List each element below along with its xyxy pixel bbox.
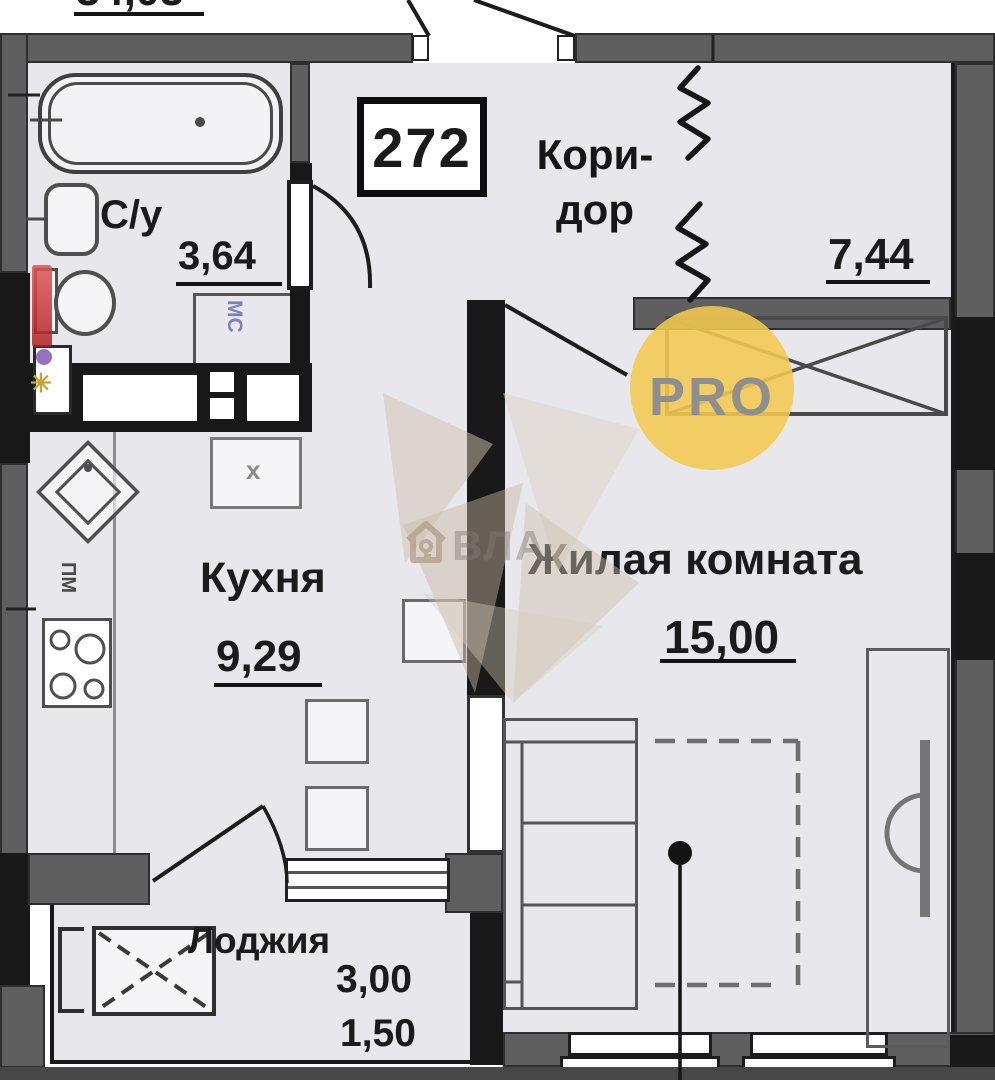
- room-corridor-name: Кори- дор: [510, 128, 680, 237]
- washing-machine-label: МС: [222, 300, 246, 333]
- floor-plan: ✳ х: [0, 0, 995, 1080]
- room-loggia-area-full: 3,00: [336, 958, 412, 1002]
- unit-number: 272: [372, 115, 471, 180]
- room-living-area: 15,00: [664, 610, 779, 664]
- unit-number-box: 272: [357, 97, 487, 197]
- room-bathroom-name: С/у: [100, 193, 162, 238]
- room-bathroom-area: 3,64: [178, 234, 256, 279]
- room-kitchen-name: Кухня: [200, 554, 326, 603]
- room-loggia-name: Лоджия: [188, 920, 330, 962]
- agency-watermark-text: ВЛА: [452, 522, 547, 570]
- living-area-underline: [660, 659, 796, 663]
- pro-watermark-badge: PRO: [630, 306, 794, 470]
- room-living-name: Жилая комната: [528, 535, 863, 585]
- room-loggia-area-reduced: 1,50: [340, 1012, 416, 1056]
- pro-watermark-text: PRO: [649, 366, 775, 428]
- dishwasher-label: ПМ: [56, 562, 79, 593]
- kitchen-area-underline: [214, 683, 322, 687]
- bathroom-area-underline: [176, 282, 282, 286]
- total-dimension-underline: [74, 12, 204, 16]
- room-kitchen-area: 9,29: [216, 632, 302, 682]
- corridor-area-underline: [826, 280, 930, 284]
- room-corridor-area: 7,44: [828, 230, 914, 280]
- agency-house-icon: [400, 516, 452, 568]
